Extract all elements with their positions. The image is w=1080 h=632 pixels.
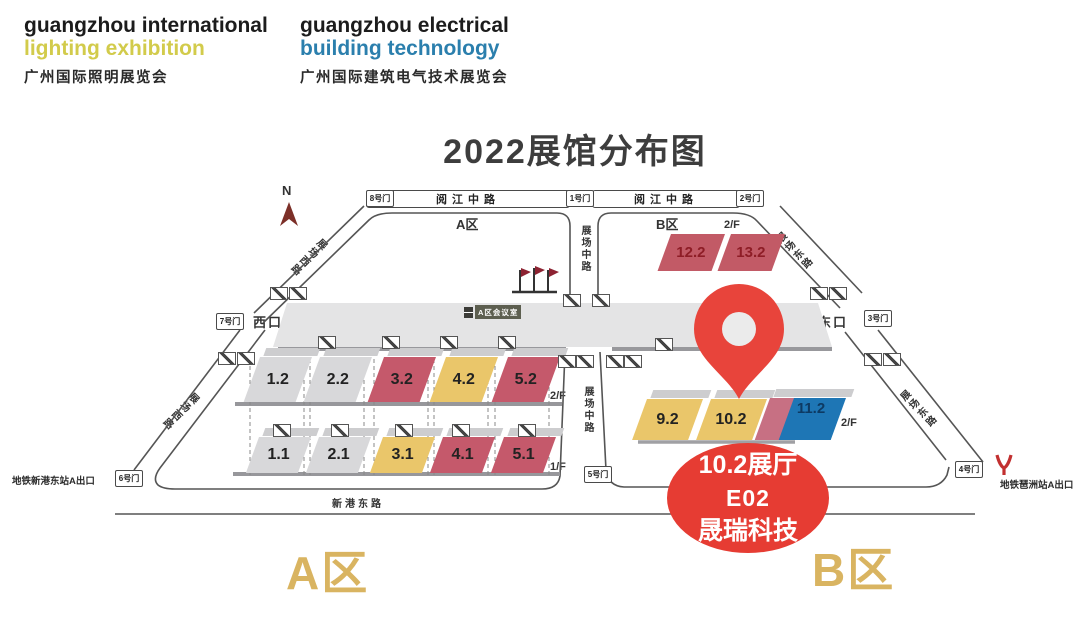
badge-booth-line: E02 [726,482,770,515]
location-pin-icon [0,0,1080,632]
screenshot-root: guangzhou international lighting exhibit… [0,0,1080,632]
badge-company-line: 晟瑞科技 [698,515,798,548]
location-badge: 10.2展厅 E02 晟瑞科技 [667,443,829,553]
badge-hall-line: 10.2展厅 [699,449,798,482]
